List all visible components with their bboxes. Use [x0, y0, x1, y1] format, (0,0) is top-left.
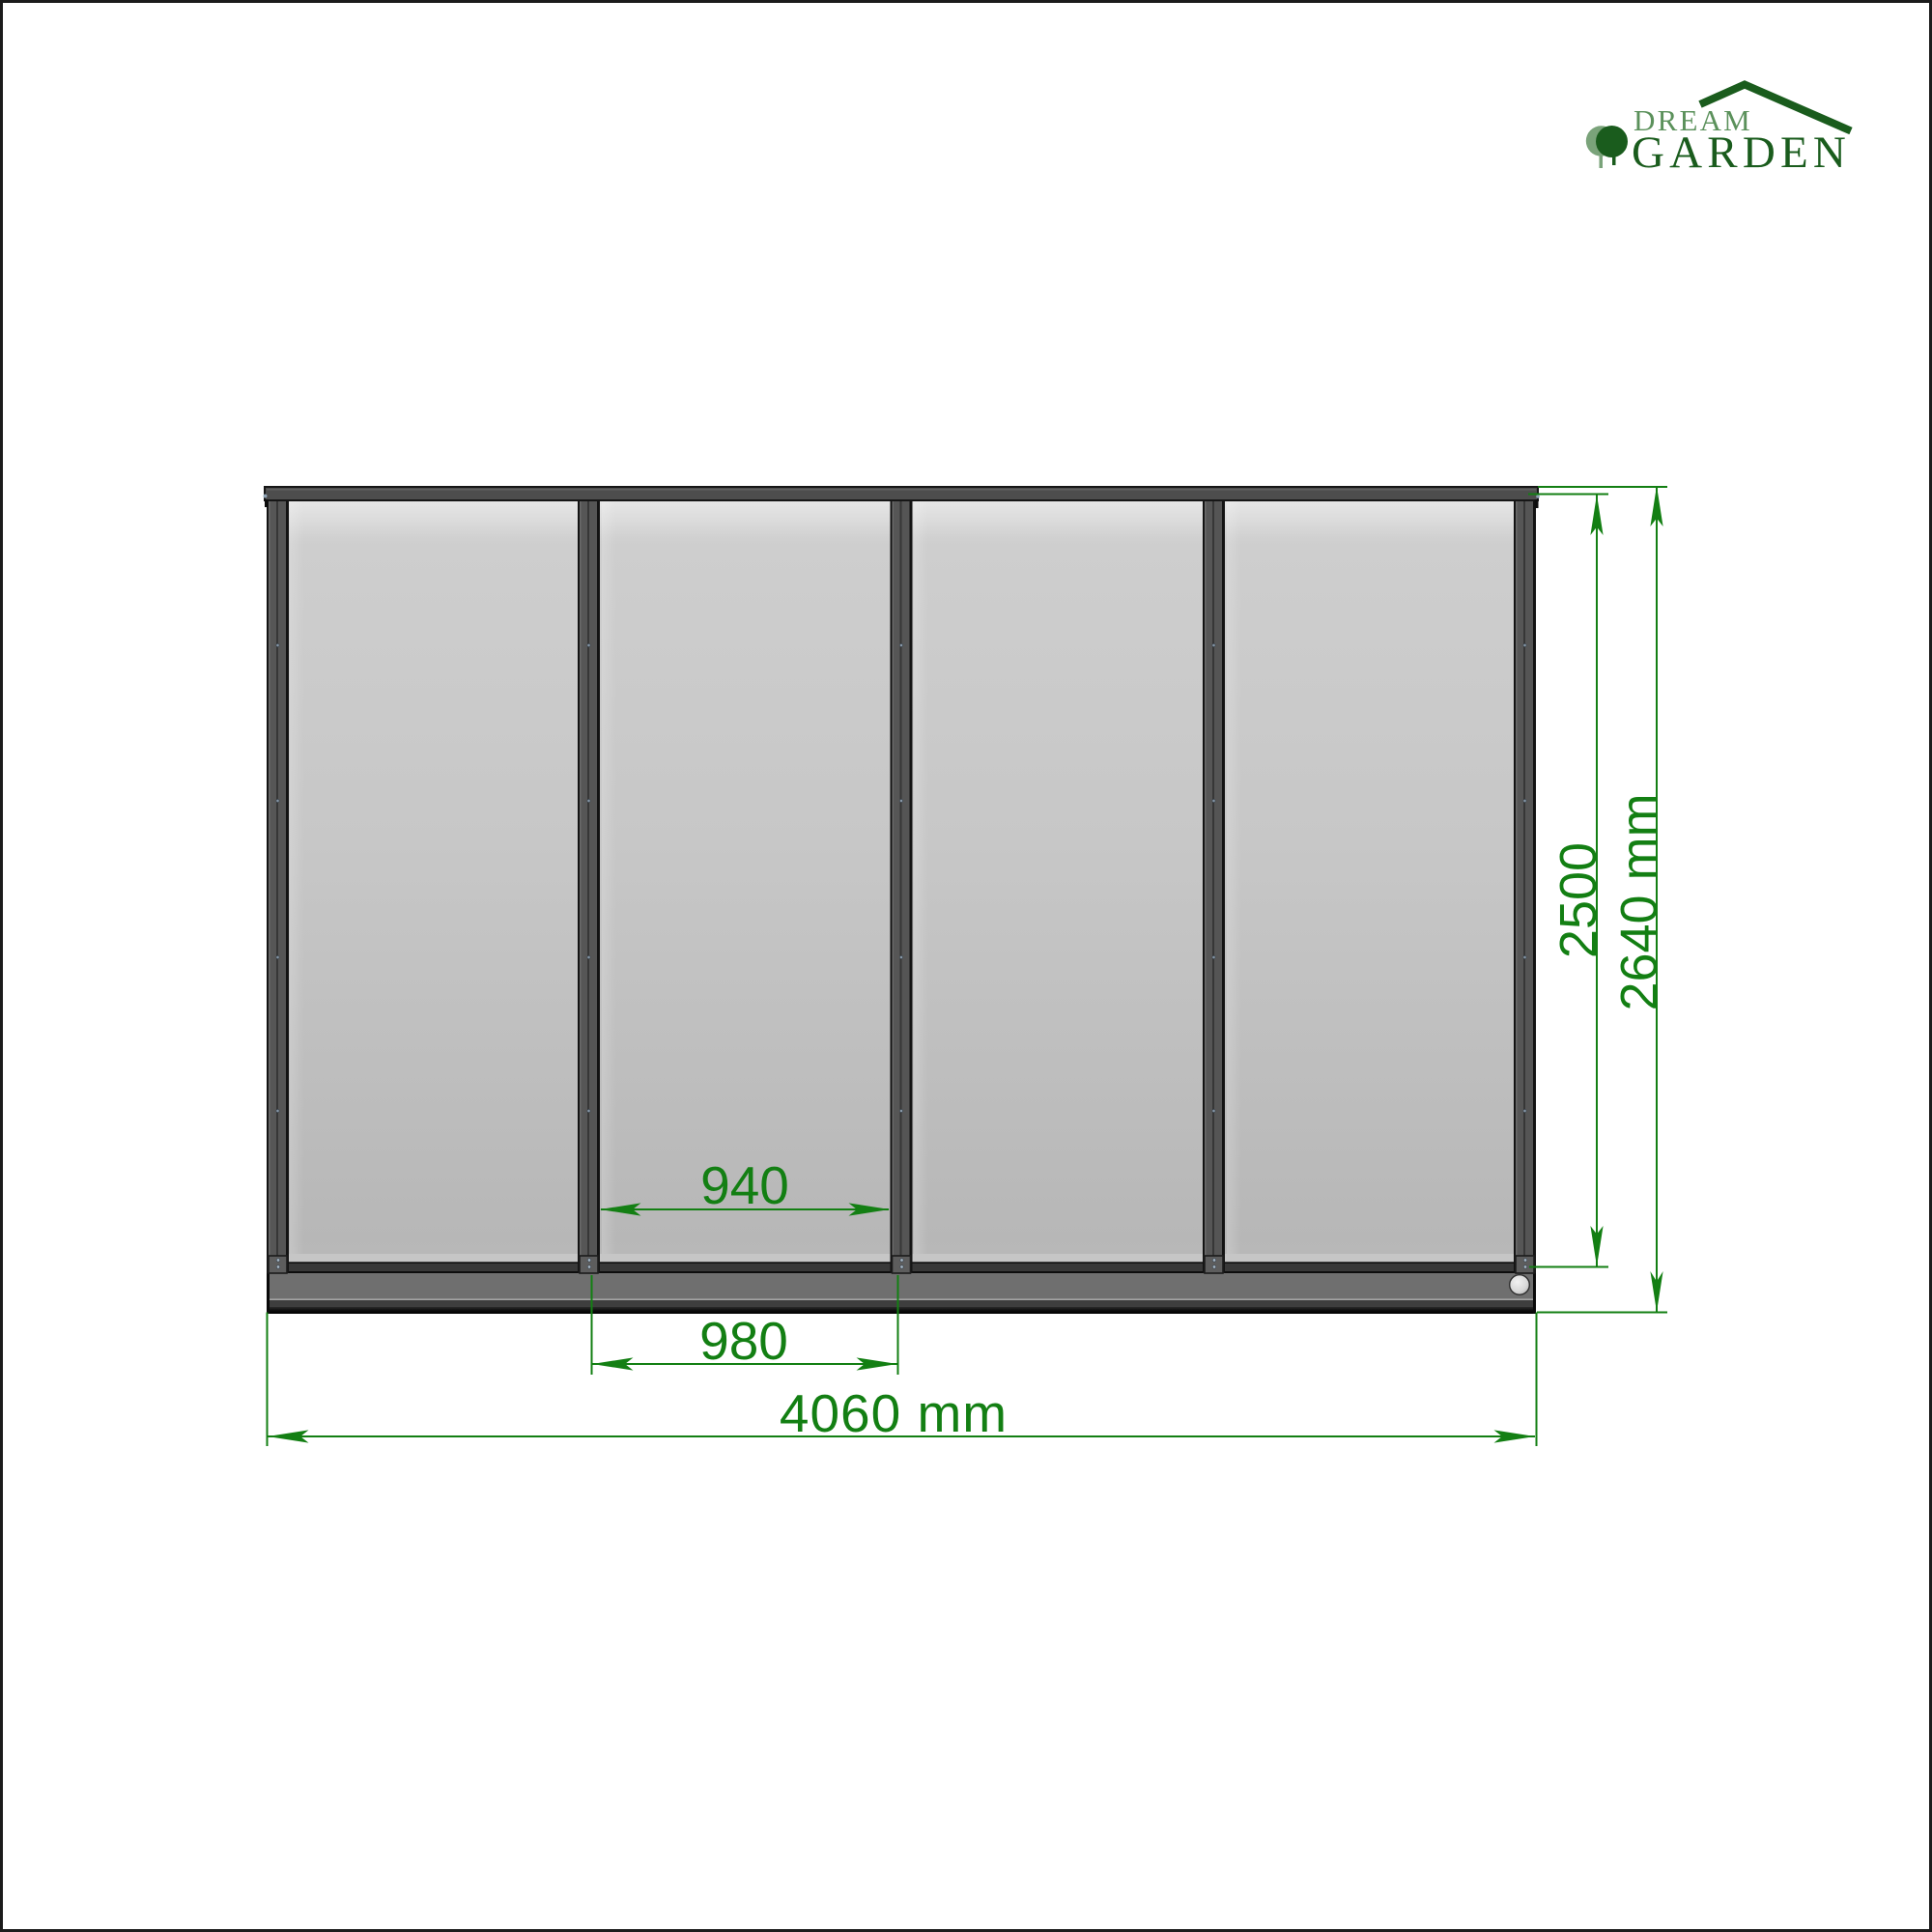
svg-text:980: 980 — [699, 1311, 788, 1371]
svg-text:2500: 2500 — [1549, 842, 1607, 958]
svg-text:940: 940 — [700, 1155, 789, 1215]
svg-text:2640 mm: 2640 mm — [1610, 793, 1668, 1010]
svg-text:GARDEN: GARDEN — [1632, 128, 1851, 178]
svg-text:4060 mm: 4060 mm — [780, 1383, 1008, 1443]
